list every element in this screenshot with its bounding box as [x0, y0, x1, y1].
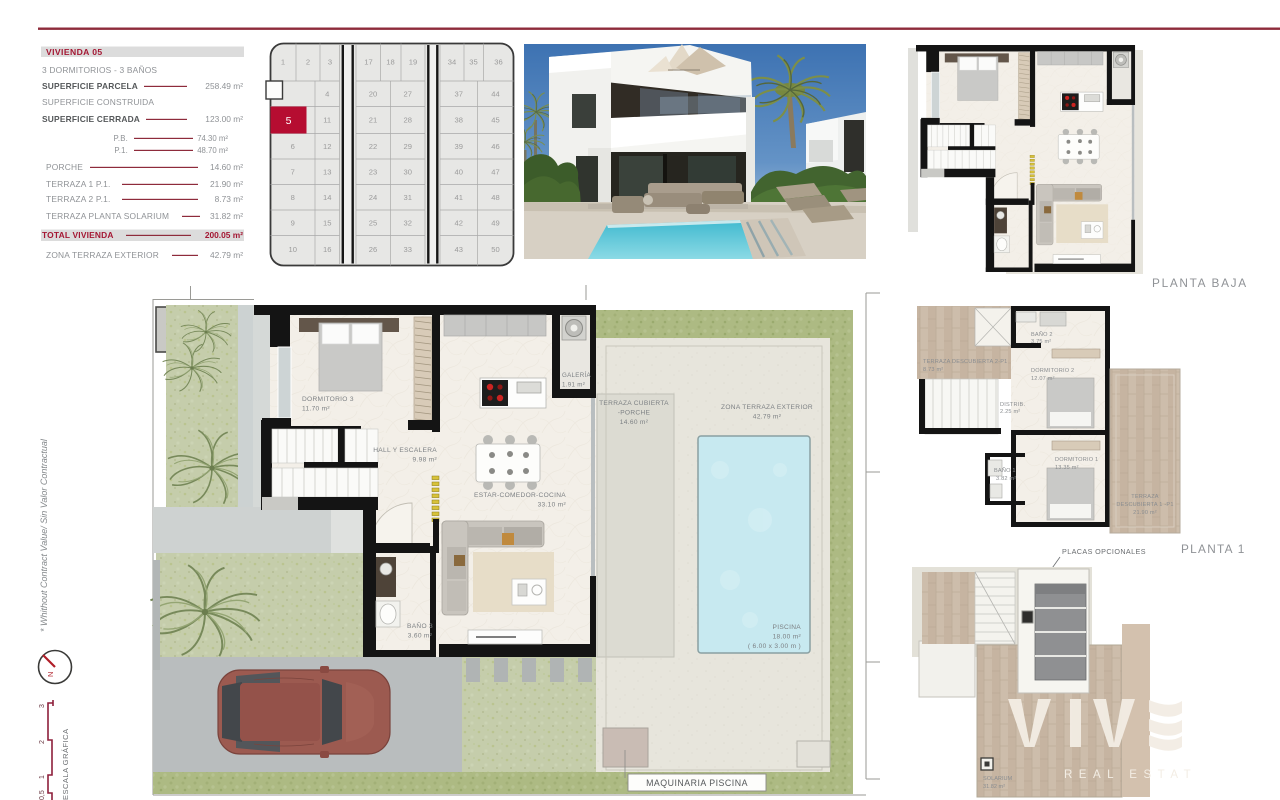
svg-text:TERRAZA 2 P.1.: TERRAZA 2 P.1. — [46, 194, 111, 204]
svg-text:14: 14 — [323, 193, 331, 202]
svg-text:74.30 m²: 74.30 m² — [197, 134, 228, 143]
svg-text:7: 7 — [291, 167, 295, 176]
svg-text:SUPERFICIE CERRADA: SUPERFICIE CERRADA — [42, 114, 140, 124]
svg-text:200.05 m²: 200.05 m² — [205, 230, 243, 240]
svg-text:5: 5 — [286, 115, 292, 127]
svg-text:1: 1 — [39, 775, 46, 779]
svg-text:3 DORMITORIOS - 3 BAÑOS: 3 DORMITORIOS - 3 BAÑOS — [42, 65, 157, 75]
svg-text:14.60 m²: 14.60 m² — [210, 162, 243, 172]
svg-text:3.82 m²: 3.82 m² — [996, 476, 1016, 482]
svg-text:40: 40 — [454, 167, 462, 176]
svg-text:REAL ESTAT: REAL ESTAT — [1064, 769, 1197, 781]
svg-text:DORMITORIO 1: DORMITORIO 1 — [1055, 457, 1098, 463]
svg-text:47: 47 — [491, 167, 499, 176]
svg-text:4: 4 — [325, 89, 329, 98]
svg-text:17: 17 — [364, 58, 372, 67]
svg-text:12: 12 — [323, 142, 331, 151]
svg-text:18: 18 — [386, 58, 394, 67]
svg-text:P.1.: P.1. — [114, 146, 128, 155]
svg-text:46: 46 — [491, 142, 499, 151]
svg-text:SUPERFICIE PARCELA: SUPERFICIE PARCELA — [42, 81, 138, 91]
svg-text:3: 3 — [328, 58, 332, 67]
svg-text:9: 9 — [291, 218, 295, 227]
svg-text:TOTAL VIVIENDA: TOTAL VIVIENDA — [42, 230, 114, 240]
svg-text:42.79 m²: 42.79 m² — [210, 250, 243, 260]
svg-text:ZONA TERRAZA EXTERIOR: ZONA TERRAZA EXTERIOR — [46, 250, 159, 260]
svg-text:PLANTA BAJA: PLANTA BAJA — [1152, 276, 1248, 290]
svg-text:33: 33 — [403, 245, 411, 254]
svg-text:BAÑO 2: BAÑO 2 — [1031, 331, 1053, 338]
svg-text:26: 26 — [369, 245, 377, 254]
svg-text:41: 41 — [454, 193, 462, 202]
svg-text:44: 44 — [491, 89, 499, 98]
svg-text:27: 27 — [403, 89, 411, 98]
svg-text:6: 6 — [291, 142, 295, 151]
svg-text:34: 34 — [448, 58, 456, 67]
svg-text:TERRAZA PLANTA SOLARIUM: TERRAZA PLANTA SOLARIUM — [46, 211, 169, 221]
svg-text:8.73 m²: 8.73 m² — [923, 367, 943, 373]
svg-text:TERRAZA DESCUBIERTA 2-P1: TERRAZA DESCUBIERTA 2-P1 — [923, 359, 1007, 365]
svg-text:N: N — [46, 672, 55, 677]
svg-text:DESCUBIERTA 1 -P1: DESCUBIERTA 1 -P1 — [1116, 502, 1173, 508]
svg-text:258.49 m²: 258.49 m² — [205, 81, 243, 91]
svg-text:123.00 m²: 123.00 m² — [205, 114, 243, 124]
svg-text:45: 45 — [491, 116, 499, 125]
svg-text:19: 19 — [409, 58, 417, 67]
svg-text:50: 50 — [491, 245, 499, 254]
svg-text:PLANTA 1: PLANTA 1 — [1181, 542, 1246, 556]
svg-text:30: 30 — [403, 167, 411, 176]
svg-text:43: 43 — [454, 245, 462, 254]
svg-text:38: 38 — [454, 116, 462, 125]
svg-text:29: 29 — [403, 142, 411, 151]
svg-text:21.90 m²: 21.90 m² — [210, 179, 243, 189]
svg-text:42: 42 — [454, 218, 462, 227]
svg-text:24: 24 — [369, 193, 377, 202]
svg-text:13: 13 — [323, 167, 331, 176]
svg-text:22: 22 — [369, 142, 377, 151]
svg-text:DISTRIB.: DISTRIB. — [1000, 402, 1025, 408]
svg-text:PORCHE: PORCHE — [46, 162, 83, 172]
svg-text:16: 16 — [323, 245, 331, 254]
svg-text:10: 10 — [288, 245, 296, 254]
svg-text:48: 48 — [491, 193, 499, 202]
svg-text:21.90 m²: 21.90 m² — [1133, 510, 1157, 516]
svg-text:21: 21 — [369, 116, 377, 125]
svg-text:3: 3 — [39, 704, 46, 708]
svg-text:2.25 m²: 2.25 m² — [1000, 409, 1020, 415]
svg-text:11: 11 — [323, 116, 331, 125]
svg-text:3.75 m²: 3.75 m² — [1031, 339, 1051, 345]
svg-text:1: 1 — [281, 58, 285, 67]
svg-text:DORMITORIO 2: DORMITORIO 2 — [1031, 368, 1074, 374]
svg-text:VIVIENDA 05: VIVIENDA 05 — [46, 47, 103, 57]
svg-text:TERRAZA 1 P.1.: TERRAZA 1 P.1. — [46, 179, 111, 189]
svg-text:SOLARIUM: SOLARIUM — [983, 776, 1013, 782]
svg-text:32: 32 — [403, 218, 411, 227]
svg-text:36: 36 — [494, 58, 502, 67]
svg-text:31.82 m²: 31.82 m² — [983, 784, 1005, 790]
svg-text:28: 28 — [403, 116, 411, 125]
svg-text:39: 39 — [454, 142, 462, 151]
svg-text:ESCALA GRÁFICA: ESCALA GRÁFICA — [61, 728, 70, 800]
svg-text:20: 20 — [369, 89, 377, 98]
svg-text:49: 49 — [491, 218, 499, 227]
svg-text:35: 35 — [469, 58, 477, 67]
svg-text:15: 15 — [323, 218, 331, 227]
svg-text:P.B.: P.B. — [113, 134, 128, 143]
svg-text:2: 2 — [306, 58, 310, 67]
svg-text:37: 37 — [454, 89, 462, 98]
svg-text:23: 23 — [369, 167, 377, 176]
svg-text:PLACAS OPCIONALES: PLACAS OPCIONALES — [1062, 547, 1146, 556]
svg-text:8.73 m²: 8.73 m² — [215, 194, 244, 204]
svg-text:48.70 m²: 48.70 m² — [197, 146, 228, 155]
svg-text:0,5: 0,5 — [39, 790, 46, 800]
svg-text:31: 31 — [403, 193, 411, 202]
svg-text:31.82 m²: 31.82 m² — [210, 211, 243, 221]
svg-text:13.35 m²: 13.35 m² — [1055, 465, 1079, 471]
svg-text:TERRAZA: TERRAZA — [1131, 494, 1159, 500]
svg-text:8: 8 — [291, 193, 295, 202]
svg-text:12.07 m²: 12.07 m² — [1031, 376, 1055, 382]
svg-text:MAQUINARIA PISCINA: MAQUINARIA PISCINA — [646, 778, 748, 788]
svg-text:25: 25 — [369, 218, 377, 227]
svg-text:* Whithout Contract Value/ Sin: * Whithout Contract Value/ Sin Valor Con… — [39, 438, 49, 632]
svg-text:SUPERFICIE CONSTRUIDA: SUPERFICIE CONSTRUIDA — [42, 97, 154, 107]
svg-text:2: 2 — [39, 740, 46, 744]
svg-text:BAÑO 1: BAÑO 1 — [994, 467, 1016, 474]
